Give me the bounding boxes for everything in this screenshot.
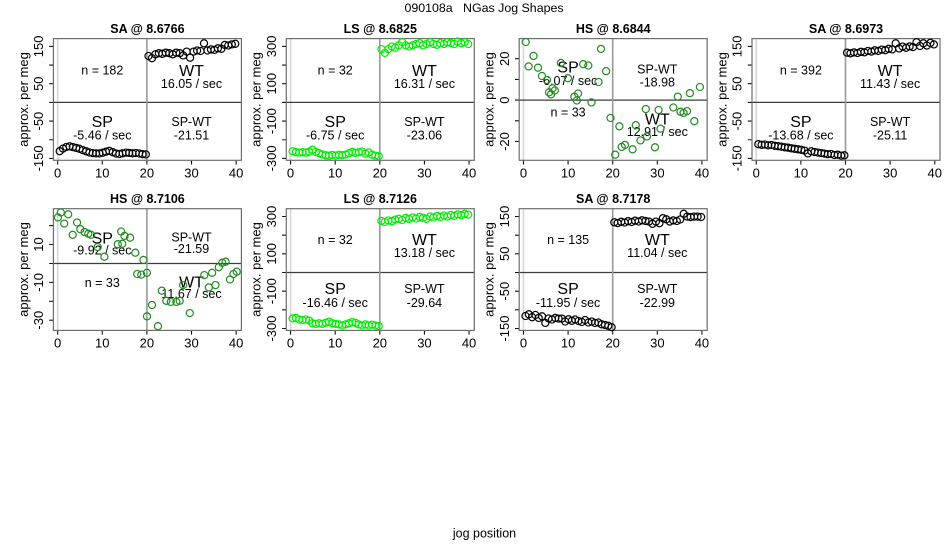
svg-text:n = 182: n = 182 [81,64,123,78]
svg-text:10: 10 [31,237,46,251]
svg-text:11.67 / sec: 11.67 / sec [161,287,221,301]
svg-text:SP-WT: SP-WT [171,115,212,129]
svg-text:-100: -100 [264,278,279,304]
svg-text:-23.06: -23.06 [407,128,442,142]
svg-text:-150: -150 [31,145,46,171]
svg-text:-21.59: -21.59 [174,242,209,256]
svg-text:10: 10 [561,336,575,351]
svg-text:-18.98: -18.98 [640,76,675,90]
svg-text:10: 10 [561,166,575,181]
svg-text:-10: -10 [31,273,46,292]
svg-text:-50: -50 [497,282,512,301]
svg-text:090108a NGas Jog Shapes: 090108a NGas Jog Shapes [404,1,563,15]
svg-text:20: 20 [140,166,154,181]
svg-text:-16.46 / sec: -16.46 / sec [303,296,368,310]
svg-text:-50: -50 [730,112,745,131]
svg-text:10: 10 [328,336,342,351]
svg-text:LS @ 8.6825: LS @ 8.6825 [344,22,417,36]
svg-text:-100: -100 [264,108,279,134]
svg-text:SA @ 8.6766: SA @ 8.6766 [110,22,184,36]
svg-text:-150: -150 [730,145,745,171]
svg-text:150: 150 [730,36,745,58]
svg-text:10: 10 [95,166,109,181]
svg-text:-6.75 / sec: -6.75 / sec [306,128,364,142]
svg-text:SP-WT: SP-WT [404,282,445,296]
svg-text:40: 40 [928,166,942,181]
svg-text:0: 0 [54,336,61,351]
svg-text:30: 30 [184,336,198,351]
svg-text:approx. per meg: approx. per meg [16,222,31,317]
svg-text:-25.11: -25.11 [873,128,908,142]
svg-text:n = 135: n = 135 [547,233,589,247]
svg-text:16.31 / sec: 16.31 / sec [394,77,455,91]
svg-text:300: 300 [264,206,279,228]
svg-text:150: 150 [31,36,46,58]
svg-text:0: 0 [287,336,294,351]
svg-text:LS @ 8.7126: LS @ 8.7126 [344,192,417,206]
svg-text:approx. per meg: approx. per meg [714,52,729,147]
svg-text:-20: -20 [497,132,512,151]
svg-text:n = 32: n = 32 [318,64,353,78]
svg-text:30: 30 [184,166,198,181]
svg-text:10: 10 [95,336,109,351]
svg-text:100: 100 [264,243,279,265]
svg-text:SP-WT: SP-WT [637,282,678,296]
svg-text:0: 0 [520,336,527,351]
svg-text:-150: -150 [497,315,512,341]
svg-text:30: 30 [417,336,431,351]
svg-text:n = 32: n = 32 [318,233,353,247]
svg-text:11.43 / sec: 11.43 / sec [860,77,920,91]
svg-text:-300: -300 [264,145,279,171]
svg-text:20: 20 [605,166,619,181]
svg-text:50: 50 [497,247,512,261]
svg-text:30: 30 [883,166,897,181]
svg-text:100: 100 [264,73,279,95]
svg-text:-11.95 / sec: -11.95 / sec [536,296,600,310]
svg-text:20: 20 [605,336,619,351]
svg-text:SA @ 8.7178: SA @ 8.7178 [576,192,650,206]
svg-text:n = 392: n = 392 [780,64,822,78]
svg-text:50: 50 [31,76,46,90]
svg-text:HS @ 8.6844: HS @ 8.6844 [576,22,651,36]
svg-text:20: 20 [838,166,852,181]
svg-text:40: 40 [695,166,709,181]
svg-text:approx. per meg: approx. per meg [482,52,497,147]
svg-text:n = 33: n = 33 [85,276,120,290]
svg-text:-21.51: -21.51 [174,128,209,142]
svg-text:approx. per meg: approx. per meg [249,52,264,147]
svg-text:-29.64: -29.64 [407,296,442,310]
svg-text:30: 30 [650,336,664,351]
svg-text:-22.99: -22.99 [640,296,675,310]
svg-text:30: 30 [417,166,431,181]
svg-text:50: 50 [730,76,745,90]
svg-text:30: 30 [650,166,664,181]
svg-text:40: 40 [695,336,709,351]
svg-text:40: 40 [462,336,476,351]
svg-text:10: 10 [794,166,808,181]
svg-text:approx. per meg: approx. per meg [249,222,264,317]
svg-text:jog position: jog position [452,526,516,540]
svg-text:0: 0 [753,166,760,181]
svg-text:HS @ 8.7106: HS @ 8.7106 [110,192,185,206]
svg-text:SP-WT: SP-WT [404,115,445,129]
svg-text:20: 20 [497,51,512,65]
svg-text:-9.92 / sec: -9.92 / sec [73,244,131,258]
svg-text:20: 20 [373,166,387,181]
svg-text:n = 33: n = 33 [551,105,586,119]
svg-text:SP-WT: SP-WT [637,62,678,76]
svg-text:approx. per meg: approx. per meg [16,52,31,147]
svg-text:20: 20 [140,336,154,351]
svg-text:-13.68 / sec: -13.68 / sec [768,128,833,142]
svg-text:11.04 / sec: 11.04 / sec [627,246,687,260]
svg-text:300: 300 [264,36,279,58]
svg-text:40: 40 [229,166,243,181]
svg-text:20: 20 [373,336,387,351]
svg-text:13.18 / sec: 13.18 / sec [394,246,455,260]
svg-text:150: 150 [497,206,512,228]
svg-text:10: 10 [328,166,342,181]
svg-text:40: 40 [462,166,476,181]
svg-text:-50: -50 [31,112,46,131]
svg-text:0: 0 [54,166,61,181]
svg-text:-30: -30 [31,311,46,330]
svg-text:-5.46 / sec: -5.46 / sec [73,128,131,142]
svg-text:16.05 / sec: 16.05 / sec [161,77,222,91]
svg-text:SP-WT: SP-WT [870,115,911,129]
svg-text:approx. per meg: approx. per meg [482,222,497,317]
svg-text:0: 0 [520,166,527,181]
svg-text:0: 0 [497,96,512,103]
svg-text:-300: -300 [264,315,279,341]
svg-text:0: 0 [287,166,294,181]
svg-text:40: 40 [229,336,243,351]
svg-text:SA @ 8.6973: SA @ 8.6973 [809,22,883,36]
